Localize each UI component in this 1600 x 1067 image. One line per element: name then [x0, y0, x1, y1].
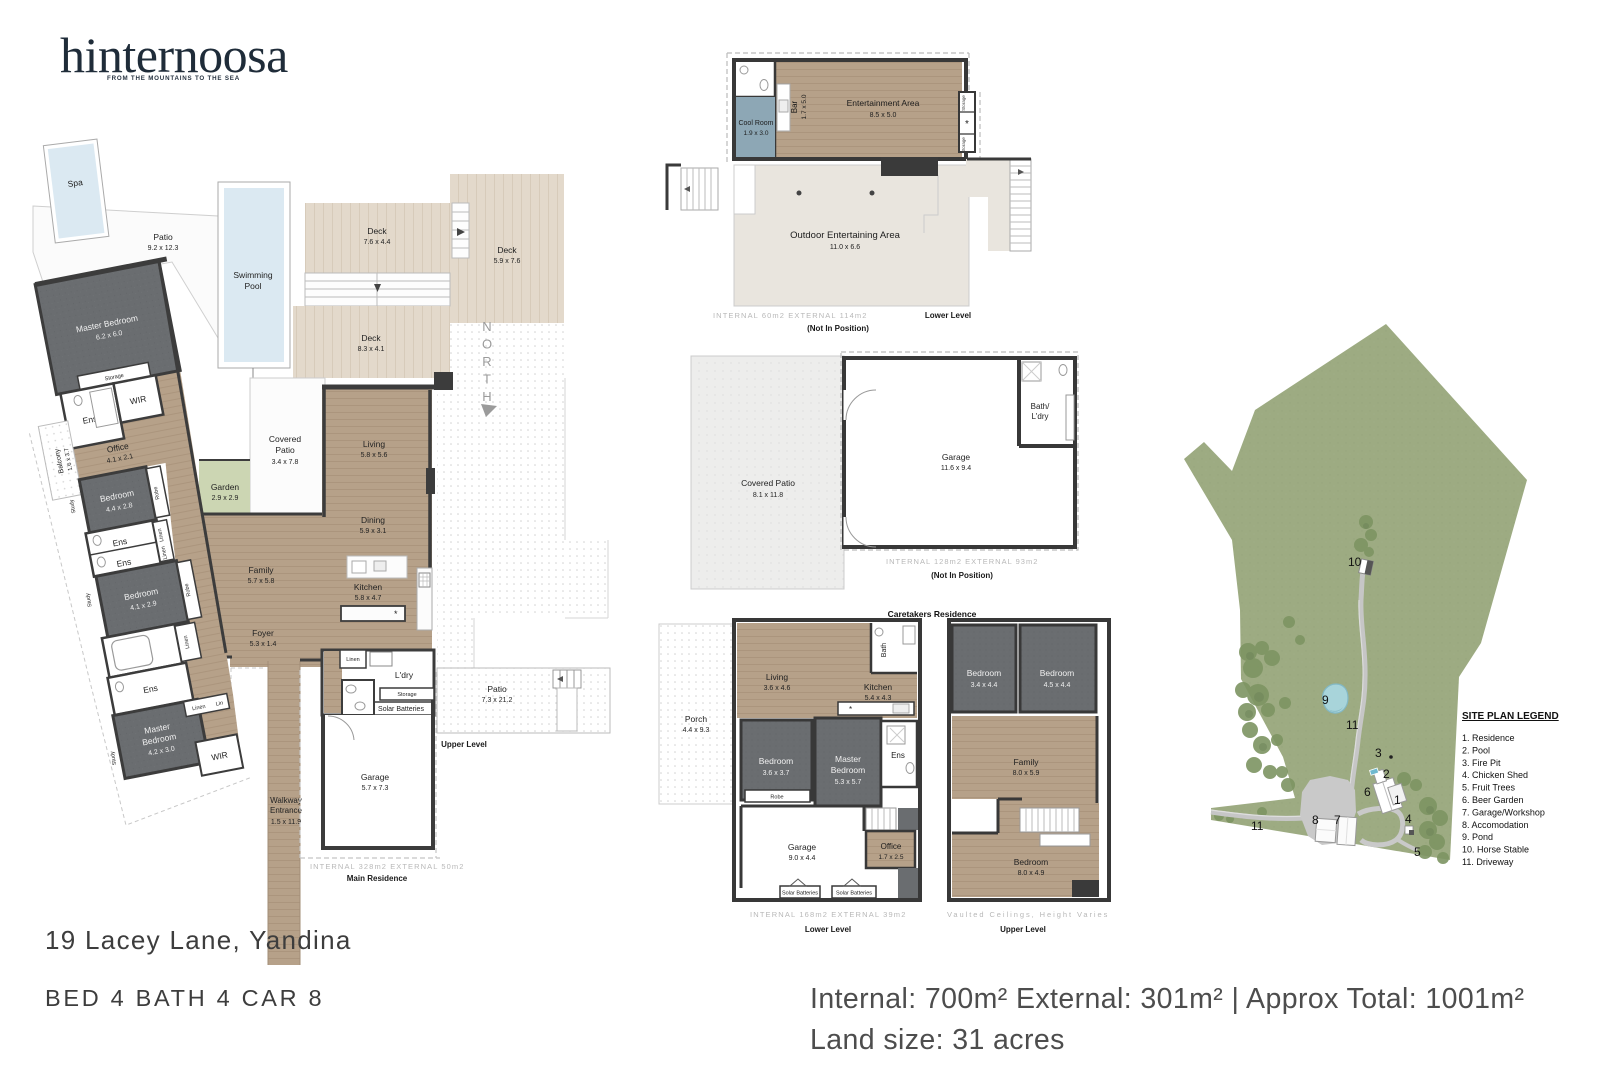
svg-text:Bedroom: Bedroom	[1014, 857, 1049, 867]
svg-text:8.0 x 5.9: 8.0 x 5.9	[1013, 770, 1040, 777]
svg-text:Study: Study	[85, 592, 94, 607]
svg-text:Entertainment Area: Entertainment Area	[847, 98, 920, 108]
svg-text:Deck: Deck	[367, 226, 387, 236]
svg-text:8. Accomodation: 8. Accomodation	[1462, 820, 1529, 830]
svg-text:Covered Patio: Covered Patio	[741, 478, 795, 488]
svg-text:Solar Batteries: Solar Batteries	[378, 706, 424, 713]
svg-text:Vaulted Ceilings, Height Varie: Vaulted Ceilings, Height Varies	[947, 910, 1109, 919]
svg-text:Bedroom: Bedroom	[831, 765, 866, 775]
svg-text:Patio: Patio	[487, 684, 507, 694]
svg-text:Patio: Patio	[153, 232, 173, 242]
svg-text:Main Residence: Main Residence	[347, 874, 408, 883]
svg-text:5.9 x 7.6: 5.9 x 7.6	[494, 258, 521, 265]
svg-text:*: *	[965, 119, 969, 130]
svg-text:L'dry: L'dry	[395, 670, 414, 680]
svg-text:N: N	[482, 319, 491, 334]
svg-text:Upper Level: Upper Level	[1000, 925, 1046, 934]
svg-text:8.1 x 11.8: 8.1 x 11.8	[753, 492, 783, 499]
svg-text:INTERNAL 60m2 EXTERNAL 114m2: INTERNAL 60m2 EXTERNAL 114m2	[713, 311, 868, 320]
svg-text:Bath: Bath	[881, 643, 888, 658]
svg-text:H: H	[482, 389, 491, 404]
svg-text:Lower Level: Lower Level	[925, 311, 971, 320]
svg-text:5.4 x 4.3: 5.4 x 4.3	[865, 695, 892, 702]
svg-text:Linen: Linen	[346, 657, 359, 663]
svg-text:2. Pool: 2. Pool	[1462, 745, 1490, 755]
svg-text:6. Beer Garden: 6. Beer Garden	[1462, 795, 1524, 805]
svg-text:5. Fruit Trees: 5. Fruit Trees	[1462, 783, 1516, 793]
svg-text:7: 7	[1334, 813, 1341, 827]
svg-text:L'dry: L'dry	[1031, 412, 1048, 421]
svg-text:Bedroom: Bedroom	[967, 668, 1002, 678]
svg-text:(Not In Position): (Not In Position)	[931, 571, 993, 580]
svg-text:Kitchen: Kitchen	[354, 582, 383, 592]
svg-text:8.3 x 4.1: 8.3 x 4.1	[358, 346, 385, 353]
svg-text:R: R	[482, 354, 491, 369]
svg-text:9.2 x 12.3: 9.2 x 12.3	[148, 245, 179, 252]
svg-text:Lower Level: Lower Level	[805, 925, 851, 934]
svg-text:*: *	[849, 705, 852, 714]
svg-text:3. Fire Pit: 3. Fire Pit	[1462, 758, 1501, 768]
svg-text:11: 11	[1251, 819, 1264, 833]
svg-text:Outdoor Entertaining Area: Outdoor Entertaining Area	[790, 230, 901, 241]
svg-text:Garage: Garage	[361, 772, 390, 782]
svg-text:Living: Living	[363, 439, 385, 449]
svg-text:8.5 x 5.0: 8.5 x 5.0	[870, 112, 897, 119]
svg-text:O: O	[482, 337, 492, 352]
svg-text:9.0 x 4.4: 9.0 x 4.4	[789, 855, 816, 862]
svg-text:Deck: Deck	[497, 245, 517, 255]
svg-text:Bar: Bar	[790, 100, 799, 113]
svg-text:Covered: Covered	[269, 434, 301, 444]
svg-text:9. Pond: 9. Pond	[1462, 832, 1493, 842]
svg-text:Storage: Storage	[961, 137, 966, 153]
svg-text:3.6 x 3.7: 3.6 x 3.7	[763, 770, 790, 777]
svg-text:10: 10	[1348, 555, 1362, 569]
svg-text:7.6 x 4.4: 7.6 x 4.4	[364, 239, 391, 246]
svg-text:Dining: Dining	[361, 515, 385, 525]
svg-text:Pool: Pool	[244, 281, 261, 291]
svg-text:Master: Master	[835, 754, 861, 764]
svg-text:2: 2	[1383, 767, 1390, 781]
svg-text:3: 3	[1375, 746, 1382, 760]
svg-text:INTERNAL 128m2 EXTERNAL 93m2: INTERNAL 128m2 EXTERNAL 93m2	[886, 557, 1039, 566]
svg-text:10. Horse Stable: 10. Horse Stable	[1462, 845, 1529, 855]
svg-text:Ens: Ens	[891, 751, 905, 760]
svg-text:Patio: Patio	[275, 445, 295, 455]
svg-text:1. Residence: 1. Residence	[1462, 733, 1515, 743]
svg-text:Solar Batteries: Solar Batteries	[836, 891, 872, 897]
svg-text:Garage: Garage	[942, 452, 971, 462]
svg-text:Bedroom: Bedroom	[759, 756, 794, 766]
svg-text:Storage: Storage	[397, 692, 416, 698]
svg-text:Cool Room: Cool Room	[738, 120, 773, 127]
svg-text:Bedroom: Bedroom	[1040, 668, 1075, 678]
svg-text:11.0 x 6.6: 11.0 x 6.6	[830, 244, 860, 251]
svg-text:5.3 x 5.7: 5.3 x 5.7	[835, 779, 862, 786]
svg-text:11.6 x 9.4: 11.6 x 9.4	[941, 465, 971, 472]
svg-text:Family: Family	[1013, 757, 1039, 767]
svg-text:6: 6	[1364, 785, 1371, 799]
svg-text:3.4 x 4.4: 3.4 x 4.4	[971, 682, 998, 689]
svg-text:INTERNAL 328m2 EXTERNAL 50m2: INTERNAL 328m2 EXTERNAL 50m2	[310, 862, 465, 871]
svg-text:8.0 x 4.9: 8.0 x 4.9	[1018, 870, 1045, 877]
svg-text:Swimming: Swimming	[233, 270, 272, 280]
svg-text:5.3 x 1.4: 5.3 x 1.4	[250, 641, 277, 648]
svg-text:Garage: Garage	[788, 842, 817, 852]
svg-text:Robe: Robe	[770, 795, 783, 801]
svg-text:5.8 x 5.6: 5.8 x 5.6	[361, 452, 388, 459]
svg-text:INTERNAL 168m2 EXTERNAL 39m2: INTERNAL 168m2 EXTERNAL 39m2	[750, 910, 907, 919]
svg-text:Spa: Spa	[67, 177, 84, 189]
svg-text:4.4 x 9.3: 4.4 x 9.3	[683, 727, 710, 734]
svg-text:11: 11	[1346, 718, 1359, 732]
svg-text:Storage: Storage	[961, 95, 966, 111]
svg-text:Foyer: Foyer	[252, 628, 274, 638]
svg-text:Study: Study	[69, 499, 78, 514]
svg-text:9: 9	[1322, 693, 1329, 707]
svg-text:4.5 x 4.4: 4.5 x 4.4	[1044, 682, 1071, 689]
svg-text:5.7 x 7.3: 5.7 x 7.3	[362, 785, 389, 792]
svg-text:Entrance: Entrance	[270, 806, 303, 815]
svg-text:7. Garage/Workshop: 7. Garage/Workshop	[1462, 807, 1545, 817]
svg-text:8: 8	[1312, 813, 1319, 827]
svg-text:5.8 x 4.7: 5.8 x 4.7	[355, 595, 382, 602]
svg-text:T: T	[483, 372, 491, 387]
svg-text:Living: Living	[766, 672, 788, 682]
svg-text:Garden: Garden	[211, 482, 240, 492]
svg-text:Upper Level: Upper Level	[441, 740, 487, 749]
svg-text:SITE PLAN LEGEND: SITE PLAN LEGEND	[1462, 711, 1559, 722]
svg-text:Kitchen: Kitchen	[864, 682, 893, 692]
svg-text:3.6 x 4.6: 3.6 x 4.6	[764, 685, 791, 692]
svg-text:5.7 x 5.8: 5.7 x 5.8	[248, 578, 275, 585]
svg-text:2.9 x 2.9: 2.9 x 2.9	[212, 495, 239, 502]
svg-text:7.3 x 21.2: 7.3 x 21.2	[482, 697, 513, 704]
svg-text:4. Chicken Shed: 4. Chicken Shed	[1462, 770, 1528, 780]
svg-text:5.9 x 3.1: 5.9 x 3.1	[360, 528, 387, 535]
svg-text:4: 4	[1405, 812, 1412, 826]
svg-text:*: *	[394, 609, 398, 619]
svg-text:Office: Office	[881, 842, 902, 851]
svg-text:Caretakers Residence: Caretakers Residence	[888, 609, 977, 619]
svg-text:Walkway: Walkway	[270, 796, 302, 805]
svg-text:(Not In Position): (Not In Position)	[807, 324, 869, 333]
svg-text:Deck: Deck	[361, 333, 381, 343]
svg-text:1.7 x 5.0: 1.7 x 5.0	[801, 94, 808, 119]
svg-text:1.9 x 3.0: 1.9 x 3.0	[744, 130, 769, 137]
svg-text:1: 1	[1394, 793, 1401, 807]
svg-text:3.4 x 7.8: 3.4 x 7.8	[272, 459, 299, 466]
svg-text:5: 5	[1414, 845, 1421, 859]
svg-text:Bath/: Bath/	[1031, 402, 1050, 411]
svg-text:Family: Family	[248, 565, 274, 575]
svg-text:Solar Batteries: Solar Batteries	[782, 891, 818, 897]
svg-text:Porch: Porch	[685, 714, 707, 724]
svg-text:1.7 x 2.5: 1.7 x 2.5	[879, 854, 904, 861]
svg-text:11. Driveway: 11. Driveway	[1462, 857, 1514, 867]
svg-text:1.5 x 11.9: 1.5 x 11.9	[271, 819, 301, 826]
